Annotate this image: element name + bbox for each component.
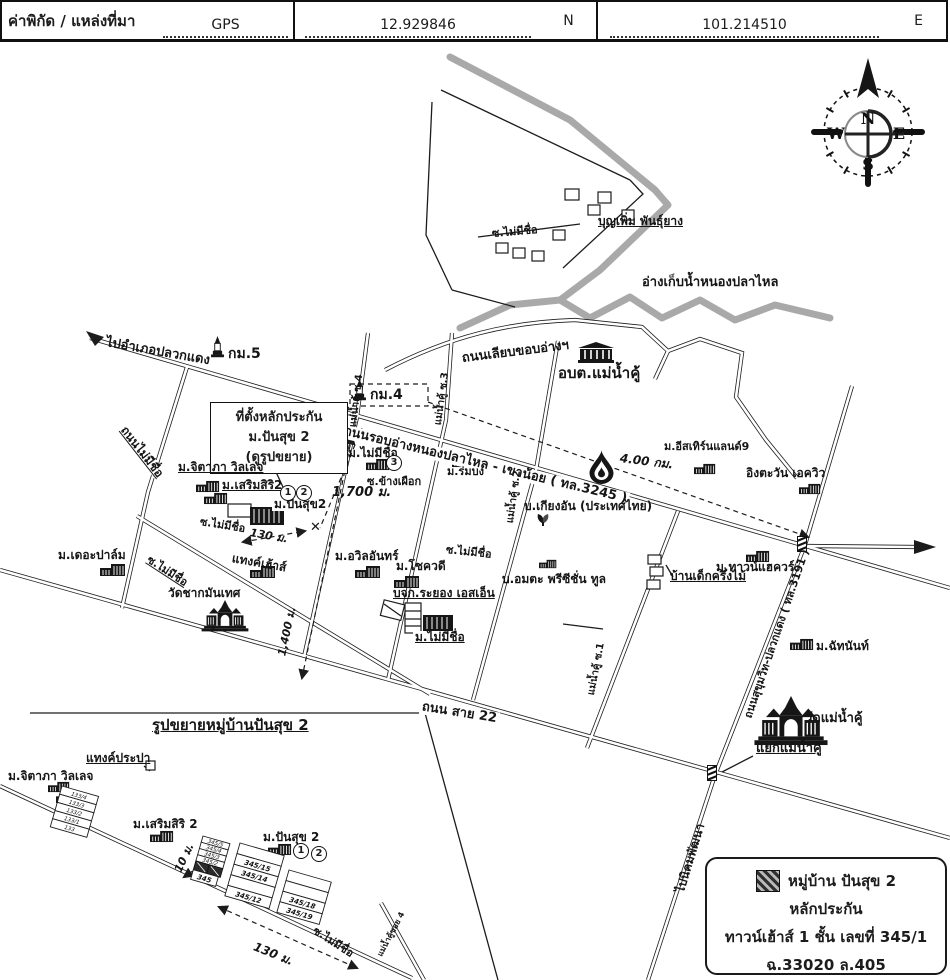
house-icon <box>196 481 219 492</box>
compass-north-arrow <box>857 58 879 98</box>
factory-icon-amata <box>539 560 556 568</box>
km5-monument-icon <box>211 336 224 357</box>
pansuk-plot-grid-left: 345/5 345/4 345/3 345/2 345 <box>191 836 230 887</box>
road-start-arrow <box>86 331 104 346</box>
compass-label-w: W <box>826 124 846 143</box>
road-continue-arrow <box>914 540 936 554</box>
label-obt-maenamkhu: อบต.แม่น้ำคู้ <box>558 366 640 382</box>
label-chatnan: ม.ฉัทนันท์ <box>816 640 869 653</box>
inset-label-sermsiri: ม.เสริมสิริ 2 <box>133 818 198 831</box>
latitude-direction: N <box>541 13 596 29</box>
plant-icon-kiangan <box>538 514 549 526</box>
circle-marker-2: 2 <box>296 485 312 501</box>
distance-1700m: 1,700 ม. <box>332 486 391 500</box>
header-title: ค่าพิกัด / แหล่งที่มา <box>2 9 158 33</box>
dotted-line <box>610 35 880 38</box>
dotted-line <box>305 35 531 38</box>
house-icon-thepalm <box>100 564 125 576</box>
house-icon-easternland <box>694 464 715 474</box>
label-wat-maenamkhu: วัดแม่น้ำคู้ <box>805 712 863 726</box>
longitude-direction: E <box>891 13 946 29</box>
compass-label-s: S <box>862 155 874 174</box>
inset-label-jitapha: ม.จิตาภา วิลเลจ <box>8 770 93 783</box>
house-icon-inset-sermsiri <box>150 831 173 842</box>
pansuk-plot-grid-right: 345/18 345/19 <box>277 870 331 924</box>
soi-label-khangphueak: ซ.ข้างเผือก <box>367 476 421 488</box>
legend-type: หลักประกัน <box>707 897 945 921</box>
label-boonperm: บุญเพิ่ม พันธุ์ยาง <box>598 215 683 228</box>
unnamed-village-dark-houses <box>380 600 453 633</box>
junction-icon-2 <box>707 766 717 781</box>
inset-label-pansuk: ม.ปันสุข 2 <box>263 831 319 844</box>
legend-box: หมู่บ้าน ปันสุข 2 หลักประกัน ทาวน์เฮ้าส์… <box>705 857 947 975</box>
x-mark: ✕ <box>310 521 321 535</box>
note-line2: ม.ปันสุข 2 <box>213 428 345 448</box>
label-unnamed-village-b: ม.ไม่มีชื่อ <box>413 631 467 644</box>
label-reservoir-name: อ่างเก็บน้ำหนองปลาไหล <box>642 276 778 290</box>
label-km5: กม.5 <box>228 347 261 362</box>
circle-marker-3: 3 <box>386 455 402 471</box>
inset-circle-1: 1 <box>293 843 309 859</box>
circle-marker-1: 1 <box>280 485 296 501</box>
gas-station-drop-icon <box>590 450 614 484</box>
longitude-value: 101.214510 <box>702 17 787 33</box>
label-easternland: ม.อีสเทิร์นแลนด์9 <box>664 441 749 453</box>
label-thepalm: ม.เดอะปาล์ม <box>58 549 126 562</box>
label-kiangan: บ.เกียงอัน (ประเทศไทย) <box>524 500 652 513</box>
house-icon-ingtawan <box>799 484 820 494</box>
house-plot-outline <box>228 504 251 517</box>
pansuk-plot-grid-mid: 345/15 345/14 345/12 <box>225 843 284 909</box>
legend-deed: ฉ.33020 ล.405 <box>707 953 945 977</box>
house-icon-chatnan <box>790 639 813 650</box>
compass-rose: N E S W <box>814 58 922 184</box>
note-line1: ที่ตั้งหลักประกัน <box>213 408 345 428</box>
label-jitapha: ม.จิตาภา วิลเลจ <box>178 461 263 474</box>
inset-label-watertank: แทงค์ประปา <box>86 752 150 765</box>
label-sermsiri: ม.เสริมสิริ2 <box>222 479 282 492</box>
label-yaek-maenamkhu: แยกแม่น้ำคู้ <box>756 742 822 756</box>
label-awil: ม.อวิลอันทร์ <box>335 550 399 563</box>
legend-hatch-swatch <box>756 870 780 892</box>
label-wat-chakmanthet: วัดชากมันเทศ <box>168 587 240 600</box>
house-icon <box>204 493 227 504</box>
label-rayong-sn: บจก.ระยอง เอสเอ็น <box>393 587 495 600</box>
label-rombong: ม.ร่มบง <box>447 466 484 478</box>
legend-detail: ทาวน์เฮ้าส์ 1 ชั้น เลขที่ 345/1 <box>707 925 945 949</box>
latitude-value: 12.929846 <box>380 17 456 33</box>
inset-circle-2: 2 <box>311 846 327 862</box>
bandek-plot-squares <box>647 555 663 589</box>
label-km4: กม.4 <box>370 388 403 403</box>
label-chokwadee: ม.โชควดี <box>396 560 446 573</box>
temple-icon-wat-chakmanthet <box>202 600 249 631</box>
compass-label-n: N <box>861 109 876 128</box>
gps-source: GPS <box>211 17 239 33</box>
label-townaquar: ม.ทาวน์แฮควร์ <box>716 561 794 574</box>
dotted-line <box>163 35 287 38</box>
compass-label-e: E <box>893 124 905 143</box>
inset-title: รูปขยายหมู่บ้านปันสุข 2 <box>152 718 309 734</box>
legend-village-name: หมู่บ้าน ปันสุข 2 <box>788 869 896 893</box>
label-ingtawan: อิงตะวัน เอควิว <box>746 467 825 480</box>
government-building-icon <box>578 342 614 363</box>
label-amata: บ.อมตะ พรีซีชั่น ทูล <box>502 573 606 586</box>
coordinates-header: ค่าพิกัด / แหล่งที่มา GPS 12.929846 N 10… <box>0 0 948 42</box>
map-drawing: N E S W 133/4 133/3 133/2 133/1 133 <box>0 0 950 980</box>
house-icon-awil <box>355 566 380 578</box>
map-document-page: N E S W 133/4 133/3 133/2 133/1 133 <box>0 0 950 980</box>
